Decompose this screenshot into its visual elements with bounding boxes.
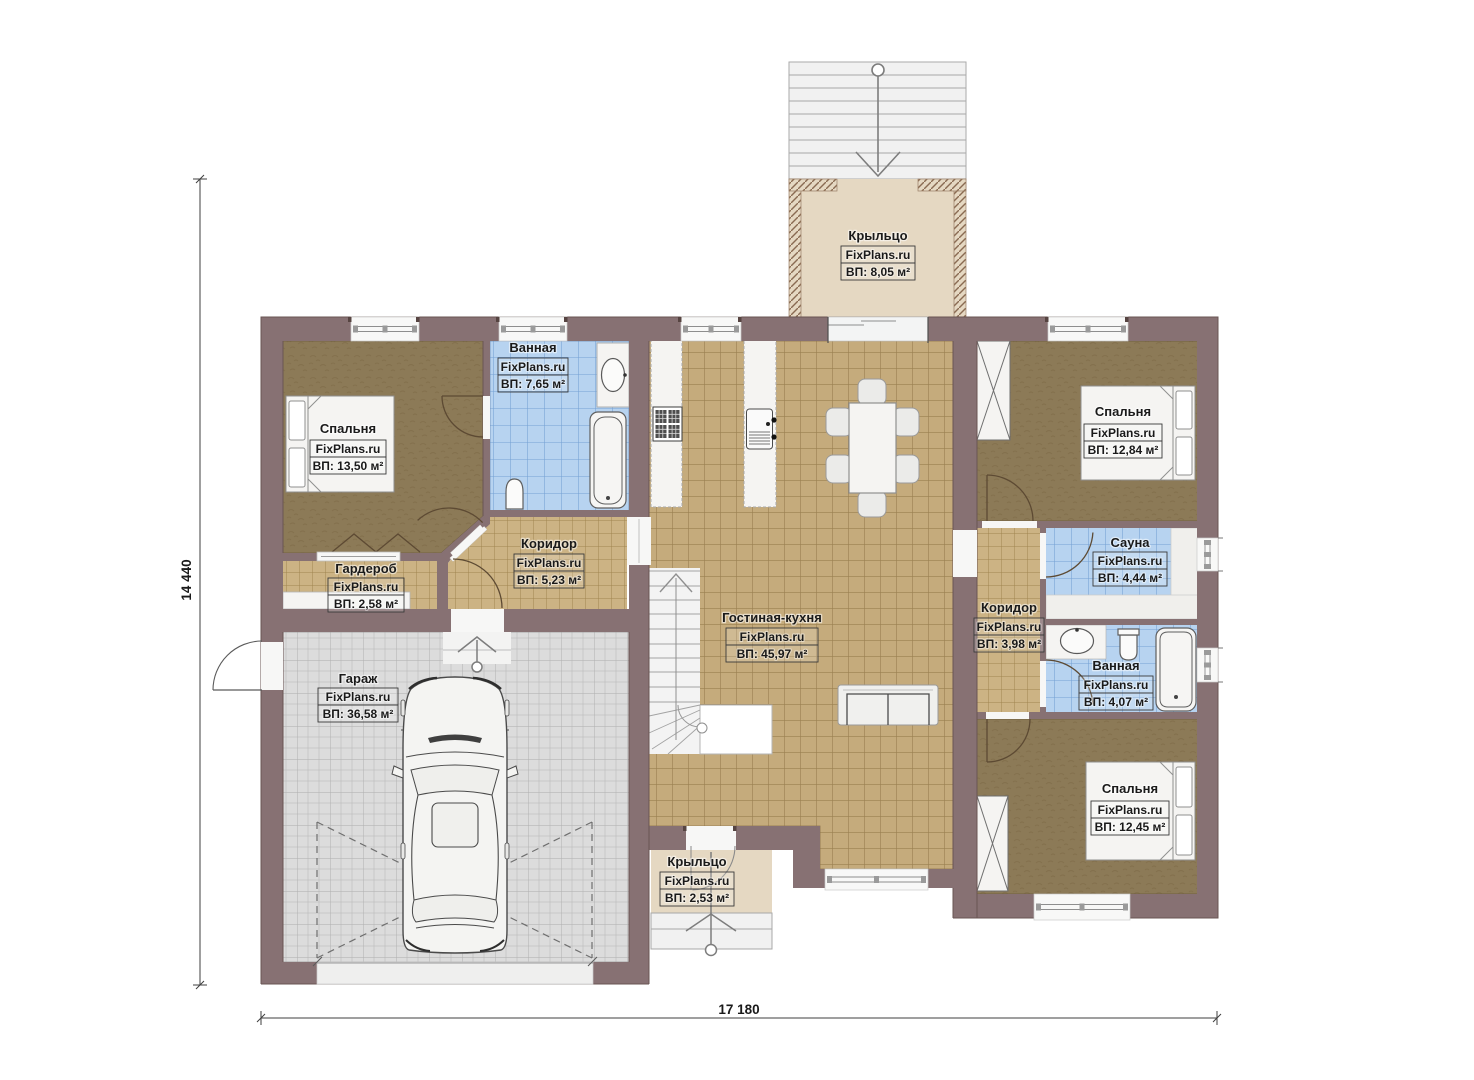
svg-text:ВП: 7,65 м²: ВП: 7,65 м²	[501, 377, 565, 391]
svg-text:Коридор: Коридор	[521, 536, 577, 551]
svg-text:ВП: 12,45 м²: ВП: 12,45 м²	[1095, 820, 1166, 834]
svg-text:Ванная: Ванная	[1092, 658, 1139, 673]
svg-text:FixPlans.ru: FixPlans.ru	[334, 580, 399, 594]
svg-text:ВП: 8,05 м²: ВП: 8,05 м²	[846, 265, 910, 279]
svg-text:Крыльцо: Крыльцо	[667, 854, 726, 869]
svg-text:ВП: 3,98 м²: ВП: 3,98 м²	[977, 637, 1041, 651]
svg-text:Спальня: Спальня	[320, 421, 376, 436]
svg-text:ВП: 12,84 м²: ВП: 12,84 м²	[1088, 443, 1159, 457]
svg-text:Сауна: Сауна	[1110, 535, 1150, 550]
svg-text:ВП: 2,53 м²: ВП: 2,53 м²	[665, 891, 729, 905]
svg-text:FixPlans.ru: FixPlans.ru	[846, 248, 911, 262]
svg-text:Ванная: Ванная	[509, 340, 556, 355]
svg-text:Гардероб: Гардероб	[335, 561, 396, 576]
svg-text:Спальня: Спальня	[1102, 781, 1158, 796]
svg-text:FixPlans.ru: FixPlans.ru	[316, 442, 381, 456]
svg-text:FixPlans.ru: FixPlans.ru	[977, 620, 1042, 634]
svg-text:ВП: 4,07 м²: ВП: 4,07 м²	[1084, 695, 1148, 709]
svg-text:ВП: 13,50 м²: ВП: 13,50 м²	[313, 459, 384, 473]
svg-text:FixPlans.ru: FixPlans.ru	[1098, 803, 1163, 817]
svg-text:Крыльцо: Крыльцо	[848, 228, 907, 243]
svg-text:17 180: 17 180	[718, 1002, 759, 1017]
svg-text:14 440: 14 440	[179, 559, 194, 600]
svg-text:ВП: 45,97 м²: ВП: 45,97 м²	[737, 647, 808, 661]
svg-text:FixPlans.ru: FixPlans.ru	[1091, 426, 1156, 440]
svg-text:FixPlans.ru: FixPlans.ru	[665, 874, 730, 888]
svg-text:FixPlans.ru: FixPlans.ru	[1098, 554, 1163, 568]
svg-text:Коридор: Коридор	[981, 600, 1037, 615]
svg-text:FixPlans.ru: FixPlans.ru	[501, 360, 566, 374]
svg-text:ВП: 4,44 м²: ВП: 4,44 м²	[1098, 571, 1162, 585]
svg-text:ВП: 36,58 м²: ВП: 36,58 м²	[323, 707, 394, 721]
svg-text:Гостиная-кухня: Гостиная-кухня	[722, 610, 822, 625]
svg-text:FixPlans.ru: FixPlans.ru	[1084, 678, 1149, 692]
svg-text:Гараж: Гараж	[339, 671, 379, 686]
svg-text:FixPlans.ru: FixPlans.ru	[517, 556, 582, 570]
svg-text:FixPlans.ru: FixPlans.ru	[326, 690, 391, 704]
svg-text:ВП: 2,58 м²: ВП: 2,58 м²	[334, 597, 398, 611]
svg-text:ВП: 5,23 м²: ВП: 5,23 м²	[517, 573, 581, 587]
svg-text:FixPlans.ru: FixPlans.ru	[740, 630, 805, 644]
svg-text:Спальня: Спальня	[1095, 404, 1151, 419]
